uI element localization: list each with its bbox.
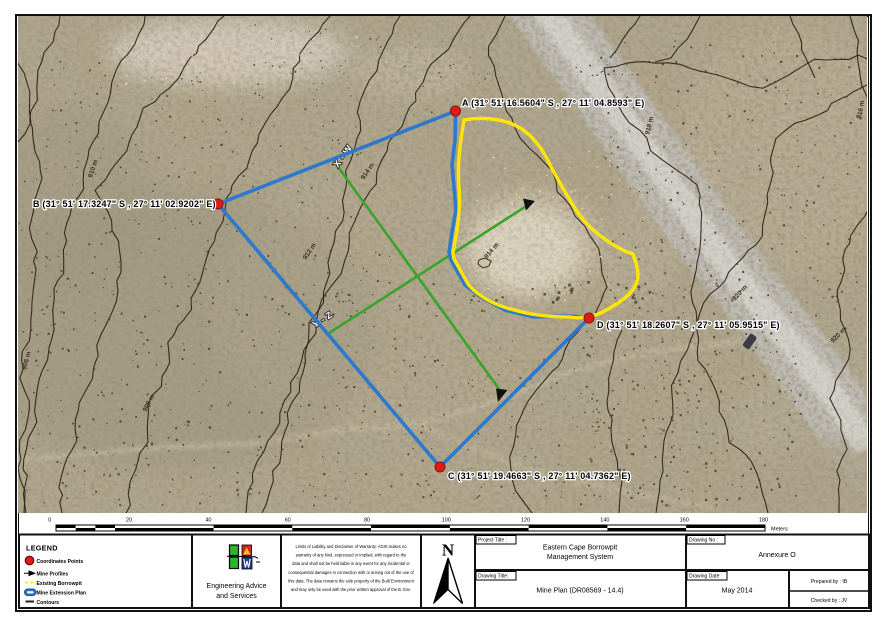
svg-text:Mine Plan (DR08569 - 14.4): Mine Plan (DR08569 - 14.4) — [536, 588, 623, 595]
svg-text:data and shall not be held lia: data and shall not be held liable in any… — [292, 561, 410, 566]
svg-text:Project Title :: Project Title : — [478, 538, 507, 544]
svg-text:Limits of Liability and Discla: Limits of Liability and Disclaimer of Wa… — [295, 544, 407, 549]
svg-text:100: 100 — [442, 518, 451, 524]
svg-text:May 2014: May 2014 — [722, 588, 753, 595]
svg-text:LEGEND: LEGEND — [26, 544, 58, 553]
svg-text:180: 180 — [759, 518, 768, 524]
svg-text:80: 80 — [364, 518, 370, 524]
svg-text:and may only be used with the: and may only be used with the prior writ… — [291, 587, 411, 592]
svg-text:Prepared by : IB: Prepared by : IB — [811, 579, 848, 585]
svg-text:Checked by : JV: Checked by : JV — [811, 598, 848, 604]
svg-text:20: 20 — [126, 518, 132, 524]
svg-text:0: 0 — [48, 518, 51, 524]
svg-text:this data. The data remains th: this data. The data remains the sole pro… — [288, 578, 415, 583]
svg-text:Engineering Advice: Engineering Advice — [207, 583, 267, 590]
svg-text:60: 60 — [285, 518, 291, 524]
svg-text:Drawing Date:: Drawing Date: — [689, 574, 721, 580]
svg-text:consequential damages in conne: consequential damages in connection with… — [288, 570, 414, 575]
svg-text:Contours: Contours — [37, 600, 60, 606]
svg-text:140: 140 — [600, 518, 609, 524]
svg-text:N: N — [442, 541, 455, 560]
svg-text:160: 160 — [680, 518, 689, 524]
svg-text:Existing Borrowpit: Existing Borrowpit — [37, 581, 83, 587]
svg-text:Mine Profiles: Mine Profiles — [37, 572, 69, 578]
svg-text:B (31° 51' 17.3247" S , 27° 11: B (31° 51' 17.3247" S , 27° 11' 02.9202"… — [33, 199, 216, 209]
svg-text:and Services: and Services — [216, 593, 257, 600]
svg-text:Coordinates Points: Coordinates Points — [37, 559, 84, 565]
svg-text:D (31° 51' 18.2607" S , 27° 11: D (31° 51' 18.2607" S , 27° 11' 05.9515"… — [597, 320, 780, 330]
svg-text:40: 40 — [205, 518, 211, 524]
svg-text:Drawing No :: Drawing No : — [689, 538, 718, 544]
svg-text:C (31° 51' 19.4663" S , 27° 11: C (31° 51' 19.4663" S , 27° 11' 04.7362"… — [448, 471, 631, 481]
svg-text:Drawing Title:: Drawing Title: — [478, 574, 508, 580]
svg-text:A (31° 51' 16.5604" S , 27° 11: A (31° 51' 16.5604" S , 27° 11' 04.8593"… — [462, 98, 644, 108]
svg-text:120: 120 — [521, 518, 530, 524]
svg-text:Mine Extension Plan: Mine Extension Plan — [37, 591, 87, 597]
svg-text:Eastern Cape Borrowpit: Eastern Cape Borrowpit — [543, 545, 617, 552]
svg-text:Annexure O: Annexure O — [758, 552, 796, 559]
svg-text:warranty of any kind, expresse: warranty of any kind, expressed or impli… — [296, 553, 407, 558]
svg-text:Management System: Management System — [547, 554, 613, 561]
